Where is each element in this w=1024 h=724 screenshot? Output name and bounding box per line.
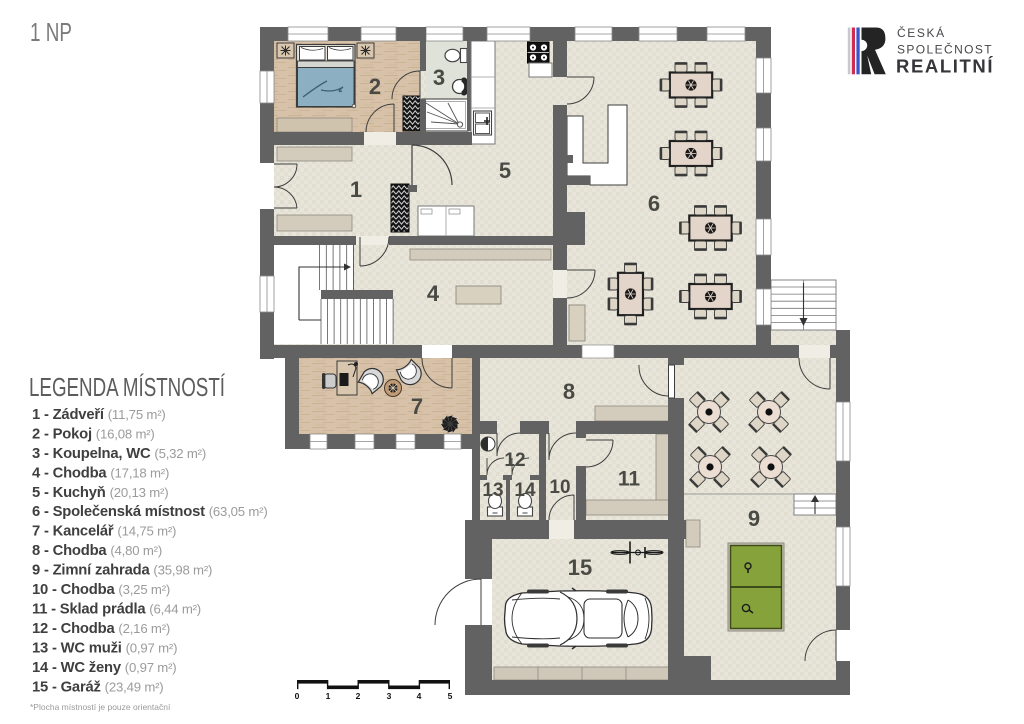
svg-text:11 - Sklad prádla (6,44 m²): 11 - Sklad prádla (6,44 m²) xyxy=(32,602,201,618)
svg-text:6: 6 xyxy=(648,191,660,216)
svg-text:5: 5 xyxy=(499,158,511,183)
svg-text:9: 9 xyxy=(748,506,760,531)
svg-text:2: 2 xyxy=(356,691,361,701)
svg-text:7: 7 xyxy=(411,394,423,419)
svg-text:0: 0 xyxy=(295,691,300,701)
svg-text:1: 1 xyxy=(350,177,362,202)
svg-text:9 - Zimní zahrada (35,98 m²): 9 - Zimní zahrada (35,98 m²) xyxy=(32,563,212,579)
svg-text:1 - Zádveří (11,75 m²): 1 - Zádveří (11,75 m²) xyxy=(32,407,166,423)
svg-text:SPOLEČNOST: SPOLEČNOST xyxy=(897,42,993,57)
svg-text:3: 3 xyxy=(433,65,445,90)
svg-text:14 - WC ženy (0,97 m²): 14 - WC ženy (0,97 m²) xyxy=(32,660,176,676)
svg-text:8 - Chodba (4,80 m²): 8 - Chodba (4,80 m²) xyxy=(32,543,162,559)
svg-text:REALITNÍ: REALITNÍ xyxy=(896,56,994,77)
svg-text:14: 14 xyxy=(514,480,536,501)
svg-text:5: 5 xyxy=(448,691,453,701)
svg-text:3 - Koupelna, WC (5,32 m²): 3 - Koupelna, WC (5,32 m²) xyxy=(32,446,206,462)
svg-text:10: 10 xyxy=(549,477,570,498)
svg-text:12: 12 xyxy=(504,450,525,471)
svg-text:ČESKÁ: ČESKÁ xyxy=(897,25,946,40)
svg-text:15 - Garáž (23,49 m²): 15 - Garáž (23,49 m²) xyxy=(32,679,163,695)
svg-text:1 NP: 1 NP xyxy=(30,19,72,47)
svg-text:4: 4 xyxy=(427,281,440,306)
svg-text:7 - Kancelář (14,75 m²): 7 - Kancelář (14,75 m²) xyxy=(32,524,176,540)
svg-text:2 - Pokoj (16,08 m²): 2 - Pokoj (16,08 m²) xyxy=(32,426,155,442)
svg-text:4 - Chodba (17,18 m²): 4 - Chodba (17,18 m²) xyxy=(32,465,169,481)
svg-text:LEGENDA MÍSTNOSTÍ: LEGENDA MÍSTNOSTÍ xyxy=(29,372,226,402)
svg-text:13 - WC muži (0,97 m²): 13 - WC muži (0,97 m²) xyxy=(32,640,177,656)
svg-text:15: 15 xyxy=(568,555,592,580)
svg-text:*Plocha místností je pouze ori: *Plocha místností je pouze orientační xyxy=(30,702,171,712)
svg-text:1: 1 xyxy=(326,691,331,701)
svg-text:10 - Chodba (3,25 m²): 10 - Chodba (3,25 m²) xyxy=(32,582,170,598)
svg-text:11: 11 xyxy=(618,468,641,491)
svg-text:4: 4 xyxy=(417,691,422,701)
svg-text:2: 2 xyxy=(369,74,381,99)
svg-text:5 - Kuchyň (20,13 m²): 5 - Kuchyň (20,13 m²) xyxy=(32,485,168,501)
svg-text:3: 3 xyxy=(387,691,392,701)
svg-text:8: 8 xyxy=(563,379,575,404)
svg-text:13: 13 xyxy=(482,480,503,501)
svg-text:12 - Chodba (2,16 m²): 12 - Chodba (2,16 m²) xyxy=(32,621,170,637)
svg-text:6 - Společenská místnost (63,0: 6 - Společenská místnost (63,05 m²) xyxy=(32,504,268,520)
